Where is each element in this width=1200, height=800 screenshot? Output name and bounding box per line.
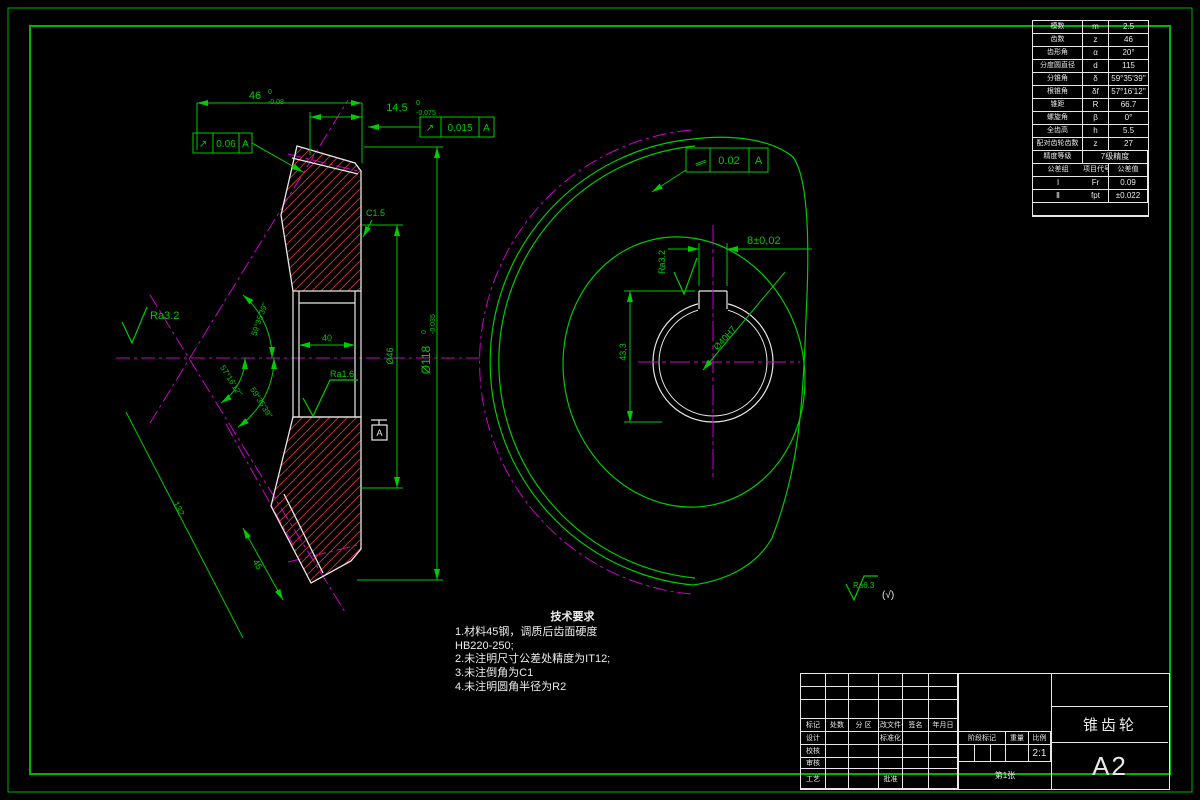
precision-grade-label: 精度等级	[1033, 151, 1083, 164]
left-section-view: 46 0 -0,08 14,5 0 -0,075 ↗ 0.06 A	[116, 89, 494, 638]
tech-req-line: 1.材料45钢，调质后齿面硬度	[455, 626, 690, 640]
dim-46-text: 46	[249, 90, 261, 102]
tech-req-line: HB220-250;	[455, 640, 690, 654]
row-review-label: 审核	[801, 758, 826, 769]
param-symbol: d	[1083, 60, 1109, 73]
bore-dia-text: Ø40H7	[712, 324, 739, 352]
general-roughness-text: Ra6.3	[853, 581, 875, 590]
dim-key-width-text: 8±0,02	[747, 235, 781, 247]
tech-requirements-title: 技术要求	[455, 611, 690, 625]
tech-req-line: 4.未注明圆角半径为R2	[455, 681, 690, 695]
gear-parameter-table: 模数 m 2.5 齿数 z 46 齿形角 α 20° 分度圆直径 d 115 分…	[1032, 20, 1149, 217]
tolerance-header: 公差组	[1033, 164, 1083, 177]
th-mark: 标记	[801, 719, 826, 732]
gdt2-value: 0.015	[447, 123, 472, 134]
tolerance-code: fpt	[1083, 190, 1109, 203]
tolerance-value: ±0.022	[1109, 190, 1148, 203]
dim-14-5-text: 14,5	[386, 102, 407, 114]
dim-46-sub: -0,08	[268, 99, 284, 106]
param-symbol: δ	[1083, 73, 1109, 86]
dim-bore-40-text: 40	[322, 333, 332, 343]
tech-requirements: 技术要求 1.材料45钢，调质后齿面硬度 HB220-250; 2.未注明尺寸公…	[455, 611, 690, 695]
param-value: 57°16'12''	[1109, 86, 1148, 99]
param-value: 46	[1109, 34, 1148, 47]
roughness-icon	[122, 307, 147, 343]
dim-dia118-text: Ø118 0 -0,035	[419, 314, 437, 374]
tolerance-group: Ⅰ	[1033, 177, 1083, 190]
param-name: 模数	[1033, 21, 1083, 34]
param-name: 配对齿轮齿数	[1033, 138, 1083, 151]
scale-label: 比例	[1029, 732, 1051, 745]
param-value: 5.5	[1109, 125, 1148, 138]
angle-inner-text: 57°16'12''	[218, 364, 244, 398]
gdt1-datum: A	[242, 139, 249, 150]
title-block-stage-section: 阶段标记 重量 比例 2:1 第1张	[959, 674, 1052, 789]
weight-label: 重量	[1006, 732, 1029, 745]
title-block-name-section: 锥齿轮 A2	[1052, 674, 1168, 789]
title-block-revision-grid: 标记 处数 分 区 更改文件号 签名 年月日 设计 标准化 校核 审核 工艺 批…	[801, 674, 959, 789]
dim-132-text: 132	[171, 500, 187, 518]
standardization-label: 标准化	[879, 732, 903, 745]
parallelism-icon: ∥	[694, 158, 707, 167]
gdt-frame-runout-0015: ↗ 0.015 A	[368, 117, 494, 137]
title-block: 标记 处数 分 区 更改文件号 签名 年月日 设计 标准化 校核 审核 工艺 批…	[800, 673, 1170, 790]
th-zone: 分 区	[849, 719, 879, 732]
dim-dia46-text: Ø46	[385, 347, 395, 364]
svg-text:-0,035: -0,035	[430, 314, 437, 334]
param-value: 0°	[1109, 112, 1148, 125]
sheet-info: 第1张	[959, 762, 1051, 788]
gear-section-outline	[271, 146, 361, 583]
right-end-view: ∥ 0.02 A 8±0,02 Ra3.2 43,3 Ø40H7	[480, 130, 895, 601]
gear-outer-profile	[490, 137, 833, 585]
param-name: 根锥角	[1033, 86, 1083, 99]
th-signature: 签名	[903, 719, 929, 732]
param-symbol: z	[1083, 34, 1109, 47]
sheet-size: A2	[1052, 743, 1168, 789]
param-value: 2.5	[1109, 21, 1148, 34]
param-name: 锥距	[1033, 99, 1083, 112]
tolerance-header: 项目代号	[1083, 164, 1109, 177]
param-value: 20°	[1109, 47, 1148, 60]
ra32-right-symbol: Ra3.2	[657, 250, 697, 294]
approve-label: 批准	[879, 769, 903, 789]
th-date: 年月日	[929, 719, 958, 732]
param-symbol: R	[1083, 99, 1109, 112]
gdt-frame-runout-006: ↗ 0.06 A	[193, 133, 303, 172]
precision-grade-value: 7级精度	[1083, 151, 1148, 164]
tech-req-line: 2.未注明尺寸公差处精度为IT12;	[455, 653, 690, 667]
gdt3-datum: A	[755, 155, 763, 167]
dim-14-5-sub: -0,075	[416, 110, 436, 117]
param-name: 分度圆直径	[1033, 60, 1083, 73]
tolerance-value: 0.09	[1109, 177, 1148, 190]
tolerance-header: 公差值	[1109, 164, 1148, 177]
param-symbol: z	[1083, 138, 1109, 151]
th-docno: 更改文件号	[879, 719, 903, 732]
datum-a-flag: A	[371, 420, 387, 440]
dim-132-line	[126, 412, 243, 638]
svg-text:0: 0	[421, 330, 428, 334]
param-name: 齿数	[1033, 34, 1083, 47]
param-value: 27	[1109, 138, 1148, 151]
param-name: 分锥角	[1033, 73, 1083, 86]
roughness-icon	[674, 258, 697, 294]
scale-value: 2:1	[1029, 745, 1051, 762]
dim-14-5-sup: 0	[416, 100, 420, 107]
stage-label: 阶段标记	[959, 732, 1006, 745]
gdt1-value: 0.06	[216, 139, 236, 150]
param-symbol: m	[1083, 21, 1109, 34]
svg-text:Ø118: Ø118	[419, 345, 433, 374]
param-value: 59°35'39''	[1109, 73, 1148, 86]
row-design-label: 设计	[801, 732, 826, 745]
datum-a-text: A	[376, 428, 382, 438]
ra16-symbol: Ra1.6	[303, 369, 358, 416]
row-process-label: 工艺	[801, 769, 826, 789]
dim-45-text: 45	[251, 558, 265, 572]
ra32-right-text: Ra3.2	[657, 250, 667, 274]
ra16-text: Ra1.6	[330, 369, 354, 379]
dim-14-5	[310, 112, 362, 155]
tolerance-group: Ⅱ	[1033, 190, 1083, 203]
stage-empty-box	[959, 674, 1051, 732]
general-roughness-suffix: (√)	[882, 589, 894, 601]
param-symbol: α	[1083, 47, 1109, 60]
empty-row	[1033, 203, 1148, 216]
gdt-frame-parallel-002: ∥ 0.02 A	[652, 148, 768, 192]
runout-icon: ↗	[199, 139, 207, 150]
angle-top-text: 59°35'39''	[250, 301, 270, 337]
roughness-icon	[303, 380, 358, 416]
ra32-left-text: Ra3.2	[150, 310, 179, 322]
param-name: 齿形角	[1033, 47, 1083, 60]
param-symbol: h	[1083, 125, 1109, 138]
dim-dia46	[362, 225, 403, 488]
row-check-label: 校核	[801, 745, 826, 758]
param-name: 螺旋角	[1033, 112, 1083, 125]
param-symbol: β	[1083, 112, 1109, 125]
gdt3-value: 0.02	[718, 155, 739, 167]
th-count: 处数	[826, 719, 849, 732]
cad-drawing-sheet: 46 0 -0,08 14,5 0 -0,075 ↗ 0.06 A	[0, 0, 1200, 800]
param-name: 全齿高	[1033, 125, 1083, 138]
drawing-number-box	[1052, 674, 1168, 707]
gdt2-datum: A	[483, 123, 490, 134]
param-symbol: δf	[1083, 86, 1109, 99]
chamfer-leader	[363, 220, 372, 237]
param-value: 66.7	[1109, 99, 1148, 112]
param-value: 115	[1109, 60, 1148, 73]
dim-46-sup: 0	[268, 89, 272, 96]
dim-key-depth-text: 43,3	[618, 343, 628, 361]
tech-req-line: 3.未注倒角为C1	[455, 667, 690, 681]
part-name: 锥齿轮	[1052, 707, 1168, 743]
chamfer-text: C1.5	[366, 208, 385, 218]
runout-icon: ↗	[426, 123, 434, 134]
tolerance-code: Fr	[1083, 177, 1109, 190]
general-roughness-note: Ra6.3 (√)	[846, 576, 894, 601]
